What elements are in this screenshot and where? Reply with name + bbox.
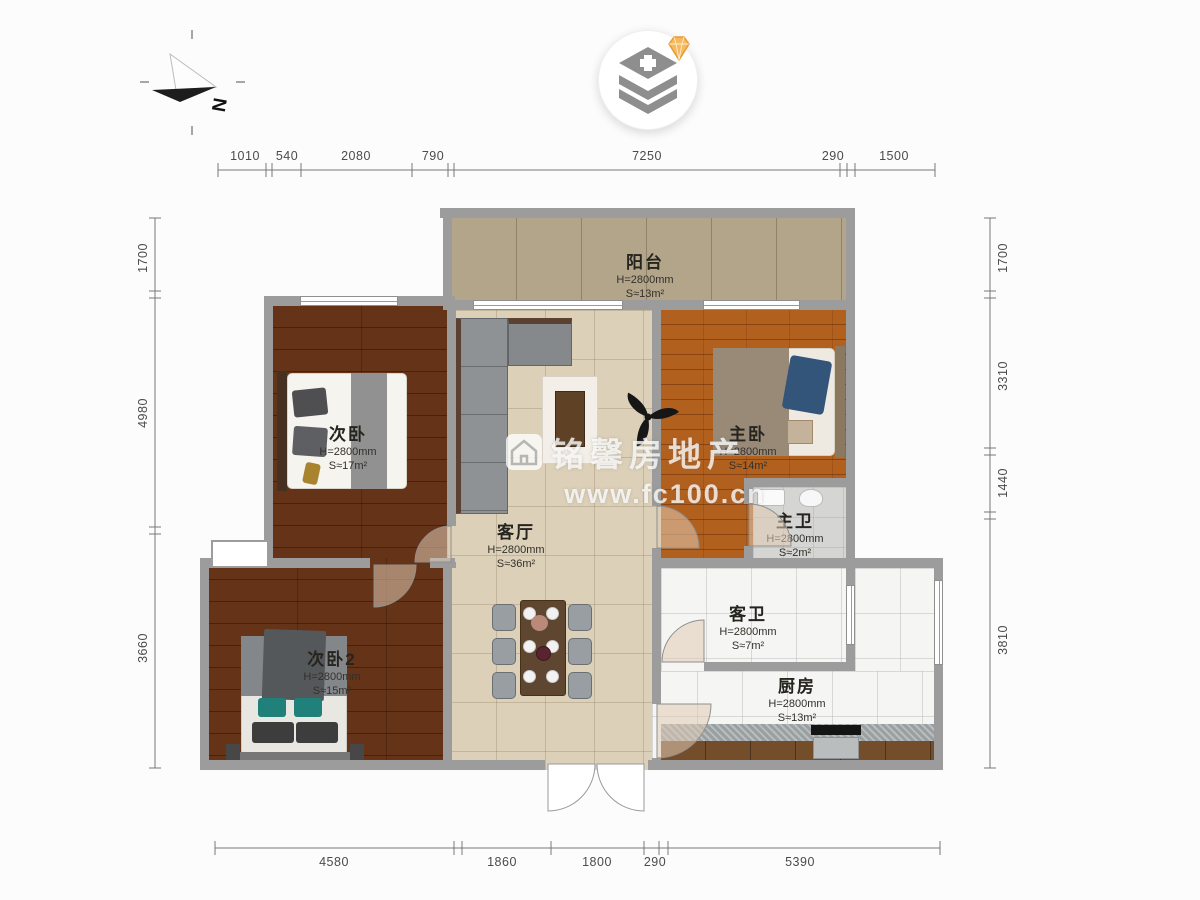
- sofa-corner: [508, 318, 572, 366]
- room-label-guestbath: 客卫 H=2800mm S≈7m²: [719, 600, 776, 654]
- wall: [846, 208, 855, 308]
- flower-decor: [531, 615, 548, 631]
- bed-headboard: [835, 346, 845, 458]
- room-name: 客卫: [719, 600, 776, 625]
- dim-label-top: 2080: [341, 149, 371, 163]
- room-height: H=2800mm: [768, 697, 825, 711]
- dim-label-right: 3810: [996, 625, 1010, 655]
- cooktop: [811, 725, 861, 735]
- dim-label-left: 3660: [136, 633, 150, 663]
- plate: [523, 640, 536, 653]
- pillow: [252, 722, 294, 743]
- floorplan-canvas: N: [0, 0, 1200, 900]
- compass-needle-white: [170, 54, 216, 90]
- wall: [200, 760, 545, 770]
- plate: [546, 670, 559, 683]
- watermark: 铭馨房地产 www.fc100.cn: [505, 428, 825, 510]
- room-height: H=2800mm: [487, 543, 544, 557]
- dining-chair: [492, 604, 516, 631]
- watermark-brand: 铭馨房地产: [551, 428, 746, 476]
- room-height: H=2800mm: [616, 273, 673, 287]
- wall: [648, 760, 943, 770]
- compass-needle-black: [152, 87, 216, 102]
- dim-label-bottom: 290: [644, 855, 666, 869]
- sofa: [454, 318, 508, 514]
- room-area: S≈7m²: [719, 639, 776, 653]
- watermark-url: www.fc100.cn: [505, 479, 825, 510]
- room-label-bedroom3: 次卧2 H=2800mm S≈15m²: [303, 645, 360, 699]
- room-area: S≈13m²: [768, 711, 825, 725]
- room-label-balcony: 阳台 H=2800mm S≈13m²: [616, 248, 673, 302]
- window: [934, 580, 943, 665]
- compass: N: [140, 30, 245, 135]
- room-name: 主卫: [766, 507, 823, 532]
- plate: [546, 607, 559, 620]
- dim-label-top: 790: [422, 149, 444, 163]
- gem-icon: [663, 34, 695, 64]
- room-name: 阳台: [616, 248, 673, 273]
- bed-headboard: [277, 371, 287, 491]
- kitchen-cabinets: [661, 741, 934, 760]
- room-label-masterbath: 主卫 H=2800mm S≈2m²: [766, 507, 823, 561]
- dining-chair: [492, 672, 516, 699]
- room-name: 次卧: [319, 420, 376, 445]
- dim-label-top: 7250: [632, 149, 662, 163]
- pillow: [258, 698, 286, 717]
- dim-label-right: 1440: [996, 468, 1010, 498]
- dim-label-bottom: 4580: [319, 855, 349, 869]
- entry-double-door: [548, 764, 644, 811]
- wall: [443, 208, 452, 308]
- fruit-plate: [536, 646, 551, 661]
- window: [300, 296, 398, 306]
- dim-label-top: 1500: [879, 149, 909, 163]
- nightstand: [350, 744, 364, 761]
- dim-label-top: 290: [822, 149, 844, 163]
- pillow: [294, 698, 322, 717]
- compass-north-label: N: [207, 96, 230, 113]
- oven: [813, 737, 859, 759]
- sliding-door: [473, 300, 623, 310]
- room-label-living: 客厅 H=2800mm S≈36m²: [487, 518, 544, 572]
- wall: [652, 568, 661, 704]
- wall: [846, 300, 855, 568]
- wall: [200, 558, 209, 770]
- dining-chair: [568, 638, 592, 665]
- wall: [704, 662, 855, 671]
- plate: [523, 670, 536, 683]
- dim-label-right: 1700: [996, 243, 1010, 273]
- room-height: H=2800mm: [766, 532, 823, 546]
- room-label-bedroom2: 次卧 H=2800mm S≈17m²: [319, 420, 376, 474]
- dim-label-right: 3310: [996, 361, 1010, 391]
- dim-label-left: 4980: [136, 398, 150, 428]
- room-name: 次卧2: [303, 645, 360, 670]
- pillow: [292, 387, 329, 417]
- wall: [447, 300, 456, 526]
- room-area: S≈17m²: [319, 459, 376, 473]
- wall: [264, 296, 273, 568]
- dining-chair: [568, 604, 592, 631]
- dim-label-left: 1700: [136, 243, 150, 273]
- dim-label-bottom: 5390: [785, 855, 815, 869]
- window: [703, 300, 800, 310]
- room-label-kitchen: 厨房 H=2800mm S≈13m²: [768, 672, 825, 726]
- wall: [440, 208, 855, 218]
- dim-label-top: 1010: [230, 149, 260, 163]
- room-area: S≈15m²: [303, 684, 360, 698]
- kitchen-counter: [661, 724, 934, 741]
- dining-chair: [568, 672, 592, 699]
- window: [846, 585, 855, 645]
- room-area: S≈36m²: [487, 557, 544, 571]
- nightstand: [226, 744, 240, 761]
- wall: [443, 568, 452, 760]
- room-height: H=2800mm: [319, 445, 376, 459]
- dining-chair: [492, 638, 516, 665]
- house-icon: [505, 433, 543, 471]
- dim-label-top: 540: [276, 149, 298, 163]
- dim-label-bottom: 1800: [582, 855, 612, 869]
- bay-window: [211, 540, 269, 568]
- wall: [652, 662, 660, 671]
- room-name: 厨房: [768, 672, 825, 697]
- room-area: S≈2m²: [766, 546, 823, 560]
- room-height: H=2800mm: [719, 625, 776, 639]
- dim-label-bottom: 1860: [487, 855, 517, 869]
- room-name: 客厅: [487, 518, 544, 543]
- room-area: S≈13m²: [616, 287, 673, 301]
- room-height: H=2800mm: [303, 670, 360, 684]
- pillow: [296, 722, 338, 743]
- wall: [430, 558, 455, 568]
